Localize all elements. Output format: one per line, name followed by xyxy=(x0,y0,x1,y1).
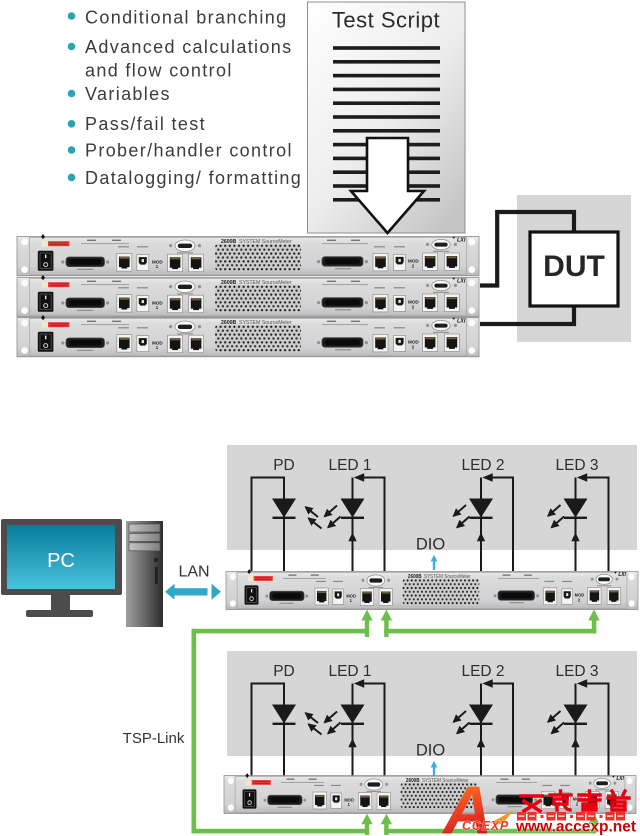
svg-text:Pass/fail test: Pass/fail test xyxy=(85,114,206,134)
svg-text:www.accexp.net: www.accexp.net xyxy=(515,819,636,836)
svg-text:Datalogging/ formatting: Datalogging/ formatting xyxy=(85,168,302,188)
svg-text:and flow control: and flow control xyxy=(85,60,233,80)
svg-text:Prober/handler control: Prober/handler control xyxy=(85,140,293,160)
svg-text:DUT: DUT xyxy=(543,250,605,283)
svg-text:Test Script: Test Script xyxy=(332,8,440,33)
svg-text:PC: PC xyxy=(47,550,75,572)
svg-text:TSP-Link: TSP-Link xyxy=(123,730,185,747)
svg-text:LAN: LAN xyxy=(178,563,209,580)
svg-text:Variables: Variables xyxy=(85,84,171,104)
svg-text:Advanced calculations: Advanced calculations xyxy=(85,37,292,57)
svg-text:CCEXP: CCEXP xyxy=(462,819,509,833)
svg-text:Conditional branching: Conditional branching xyxy=(85,8,287,28)
